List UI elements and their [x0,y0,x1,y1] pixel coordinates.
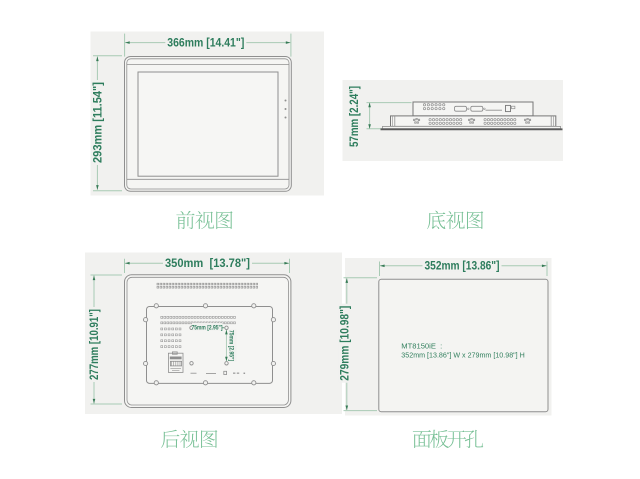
svg-text:75mm [2.95"]: 75mm [2.95"] [228,330,235,361]
svg-text:277mm [10.91"]: 277mm [10.91"] [87,309,101,380]
svg-text:352mm [13.86"]: 352mm [13.86"] [425,259,500,273]
svg-text:279mm [10.98"]: 279mm [10.98"] [337,306,351,381]
svg-text:MT8150iE :: MT8150iE : [401,341,442,350]
svg-text:366mm [14.41"]: 366mm [14.41"] [167,36,244,50]
svg-text:75mm [2.95"]: 75mm [2.95"] [192,324,223,331]
svg-text:293mm [11.54"]: 293mm [11.54"] [90,82,104,163]
svg-text:352mm [13.86"] W x 279mm [10.9: 352mm [13.86"] W x 279mm [10.98"] H [401,351,525,360]
svg-text:350mm [13.78"]: 350mm [13.78"] [165,256,250,270]
svg-text:57mm [2.24"]: 57mm [2.24"] [349,86,361,147]
